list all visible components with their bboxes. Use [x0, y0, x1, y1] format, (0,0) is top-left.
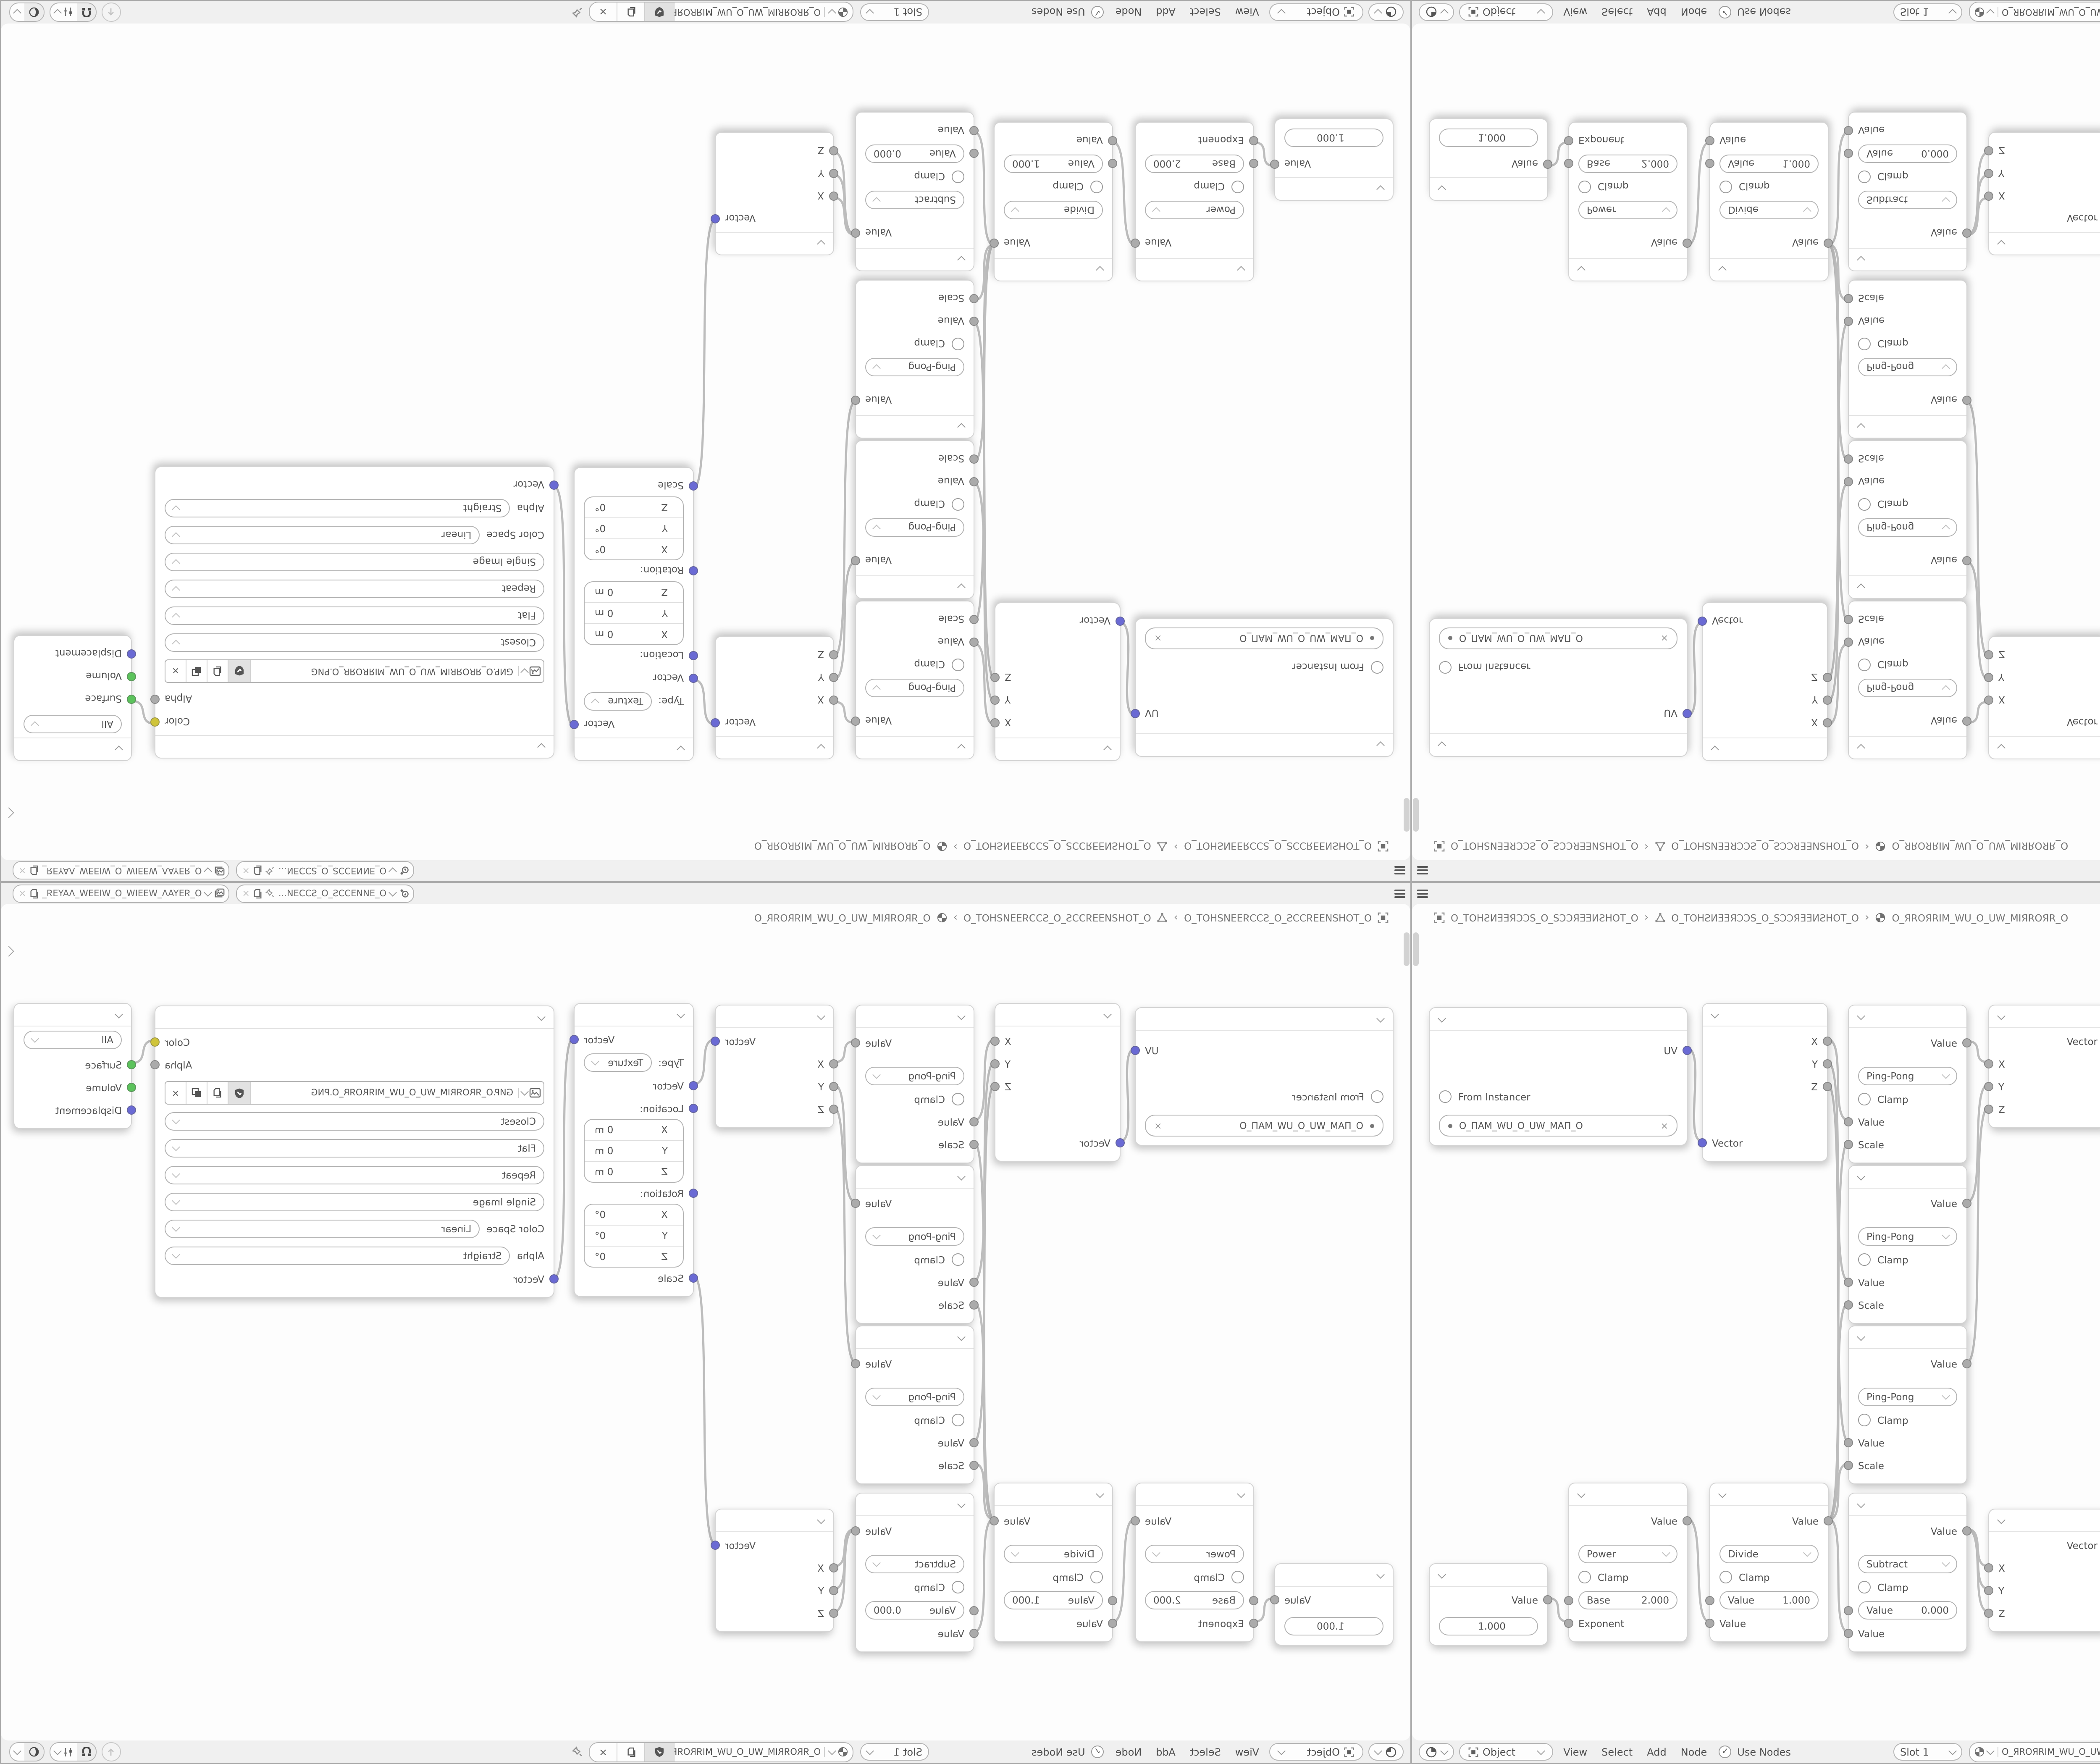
- node-mapping[interactable]: VectorType:TextureVectorLocation:X0 mY0 …: [574, 467, 694, 761]
- socket-value[interactable]: [990, 1037, 1000, 1046]
- socket-value[interactable]: [1705, 159, 1714, 168]
- socket-value[interactable]: [990, 1059, 1000, 1068]
- close-icon[interactable]: ×: [1154, 1120, 1162, 1131]
- checkbox-unchecked-icon[interactable]: [1231, 1571, 1244, 1583]
- node-collapse-header[interactable]: [995, 1483, 1112, 1506]
- socket-vector[interactable]: [689, 651, 698, 660]
- node-canvas[interactable]: O_TOHƧИƎƎЯƆƆS_O_SƆƆЯƎƎИƧHOT_O › O_TOHƧИƎ…: [1, 24, 1410, 860]
- dropdown-ping-pong[interactable]: Ping-Pong: [1858, 518, 1957, 537]
- view-layer-name[interactable]: O_ЯƎYAΛ_WƎƎIW_O_WIƎƎW_ΛAYƎЯ_O: [42, 888, 202, 898]
- overlay-dropdown[interactable]: [10, 1743, 24, 1761]
- checkbox-unchecked-icon[interactable]: [1371, 1090, 1383, 1103]
- dropdown-all[interactable]: All: [24, 715, 122, 733]
- close-icon[interactable]: ×: [1154, 633, 1162, 644]
- material-selector[interactable]: O_ЯROЯRIM_WU_O_UW_MIЯROЯR_O: [1969, 2, 2100, 22]
- node-mapping[interactable]: VectorType:TextureVectorLocation:X0 mY0 …: [574, 1003, 694, 1297]
- value-field[interactable]: 1.000: [1439, 1617, 1538, 1635]
- node-sep_xyz[interactable]: XYZVector: [995, 1003, 1121, 1162]
- socket-value[interactable]: [1844, 1300, 1853, 1310]
- property-dropdown[interactable]: Straight: [165, 499, 510, 517]
- socket-value[interactable]: [969, 317, 979, 326]
- socket-value[interactable]: [1705, 1619, 1714, 1628]
- dropdown-ping-pong[interactable]: Ping-Pong: [1858, 1227, 1957, 1246]
- checkbox-unchecked-icon[interactable]: [952, 1581, 964, 1593]
- checkbox-unchecked-icon[interactable]: [1719, 181, 1732, 193]
- dropdown-ping-pong[interactable]: Ping-Pong: [1858, 1388, 1957, 1406]
- socket-value[interactable]: [1823, 1059, 1832, 1068]
- socket-vector[interactable]: [549, 480, 559, 490]
- checkbox-unchecked-icon[interactable]: [1858, 659, 1871, 671]
- socket-value[interactable]: [1962, 1526, 1971, 1536]
- node-uv_map[interactable]: UVFrom InstancerO_ПAM_WU_O_UW_MAП_O×: [1429, 618, 1688, 757]
- material-browse[interactable]: [825, 3, 853, 21]
- node-collapse-header[interactable]: [1849, 736, 1966, 759]
- node-m1[interactable]: ValuePing-PongClampValueScale: [855, 1005, 974, 1163]
- material-browse[interactable]: [1970, 3, 1998, 21]
- xyz-field[interactable]: Y0°: [585, 518, 683, 539]
- node-divide[interactable]: ValueDivideClampValue1.000Value: [1709, 122, 1829, 281]
- node-collapse-header[interactable]: [716, 232, 833, 255]
- socket-value[interactable]: [829, 146, 838, 155]
- node-divide[interactable]: ValueDivideClampValue1.000Value: [994, 1483, 1113, 1642]
- socket-value[interactable]: [829, 650, 838, 659]
- xyz-field[interactable]: Y0°: [585, 1225, 683, 1246]
- socket-value[interactable]: [1823, 696, 1832, 705]
- node-value[interactable]: Value1.000: [1274, 118, 1394, 201]
- copy-button[interactable]: [207, 1082, 228, 1104]
- socket-value[interactable]: [851, 1526, 860, 1536]
- dropdown-ping-pong[interactable]: Ping-Pong: [865, 679, 964, 697]
- node-collapse-header[interactable]: [856, 736, 974, 759]
- node-collapse-header[interactable]: [1430, 1564, 1547, 1587]
- socket-value[interactable]: [1249, 136, 1258, 145]
- breadcrumb-nodetree[interactable]: O_TOHƧИƎƎЯƆƆS_O_SƆƆЯƎƎИƧHOT_O: [963, 912, 1151, 924]
- node-collapse-header[interactable]: [575, 738, 693, 760]
- breadcrumb-material[interactable]: O_ЯROЯRIM_WU_O_UW_MIЯROЯR_O: [1892, 912, 2068, 924]
- close-icon[interactable]: ×: [242, 865, 249, 876]
- socket-value[interactable]: [851, 228, 860, 238]
- node-collapse-header[interactable]: [1136, 733, 1393, 756]
- view-layer-selector[interactable]: O_ЯƎYAΛ_WƎƎIW_O_WIƎƎW_ΛAYƎЯ_O ×: [13, 861, 229, 880]
- new-material-button[interactable]: [617, 3, 645, 21]
- socket-value[interactable]: [1270, 160, 1279, 169]
- node-collapse-header[interactable]: [1136, 1483, 1253, 1506]
- socket-value[interactable]: [851, 396, 860, 405]
- value-field[interactable]: 1.000: [1284, 1617, 1383, 1635]
- shader-type-dropdown[interactable]: Object: [1459, 3, 1553, 21]
- material-slot-dropdown[interactable]: Slot 1: [1893, 1743, 1962, 1761]
- node-collapse-header[interactable]: [856, 1005, 974, 1028]
- socket-value[interactable]: [1844, 149, 1853, 158]
- socket-vector[interactable]: [127, 1105, 136, 1115]
- socket-value[interactable]: [1984, 169, 1993, 178]
- socket-value[interactable]: [1844, 317, 1853, 326]
- property-dropdown[interactable]: Linear: [165, 526, 480, 544]
- node-sep_xyz[interactable]: XYZVector: [1702, 1003, 1828, 1162]
- checkbox-unchecked-icon[interactable]: [1090, 181, 1103, 193]
- socket-value[interactable]: [969, 1117, 979, 1126]
- socket-vector[interactable]: [1116, 1138, 1125, 1147]
- checkbox-unchecked-icon[interactable]: [952, 1253, 964, 1266]
- fake-user-button[interactable]: [228, 660, 251, 682]
- socket-value[interactable]: [1705, 136, 1714, 145]
- socket-value[interactable]: [1844, 1606, 1853, 1615]
- node-power[interactable]: ValuePowerClampBase2.000Exponent: [1568, 1483, 1688, 1642]
- unlink-material-button[interactable]: ×: [590, 3, 617, 21]
- node-m1[interactable]: ValuePing-PongClampValueScale: [1848, 601, 1967, 759]
- node-subtract[interactable]: ValueSubtractClampValue0.000Value: [1848, 112, 1967, 271]
- new-material-button[interactable]: [617, 1743, 645, 1761]
- socket-value[interactable]: [829, 1609, 838, 1618]
- checkbox-checked-icon[interactable]: ✓: [1091, 6, 1104, 18]
- parent-up-button[interactable]: [102, 3, 121, 22]
- node-collapse-header[interactable]: [1569, 1483, 1687, 1506]
- socket-value[interactable]: [1824, 1516, 1833, 1525]
- dropdown-power[interactable]: Power: [1578, 201, 1677, 219]
- dropdown-ping-pong[interactable]: Ping-Pong: [865, 1067, 964, 1085]
- socket-value[interactable]: [829, 673, 838, 682]
- socket-value[interactable]: [150, 695, 160, 704]
- menu-select[interactable]: Select: [1190, 1746, 1221, 1758]
- socket-vector[interactable]: [1131, 709, 1140, 718]
- socket-value[interactable]: [1844, 294, 1853, 303]
- node-m2[interactable]: ValuePing-PongClampValueScale: [1848, 440, 1967, 599]
- uv-map-dropdown[interactable]: O_ПAM_WU_O_UW_MAП_O×: [1439, 627, 1677, 649]
- dropdown-repeat[interactable]: Repeat: [165, 580, 544, 598]
- checkbox-unchecked-icon[interactable]: [1371, 661, 1383, 674]
- checkbox-unchecked-icon[interactable]: [952, 498, 964, 511]
- checkbox-unchecked-icon[interactable]: [1858, 1253, 1871, 1266]
- socket-value[interactable]: [1131, 239, 1140, 248]
- menu-view[interactable]: View: [1235, 6, 1259, 18]
- node-m2[interactable]: ValuePing-PongClampValueScale: [1848, 1165, 1967, 1324]
- socket-value[interactable]: [1844, 477, 1853, 486]
- xyz-field[interactable]: Z0°: [585, 497, 683, 518]
- node-collapse-header[interactable]: [856, 575, 974, 598]
- node-collapse-header[interactable]: [1849, 248, 1966, 270]
- dropdown-power[interactable]: Power: [1145, 1545, 1244, 1563]
- checkbox-checked-icon[interactable]: ✓: [1091, 1746, 1104, 1758]
- value-field[interactable]: Base2.000: [1145, 155, 1244, 173]
- socket-value[interactable]: [1962, 396, 1971, 405]
- node-subtract[interactable]: ValueSubtractClampValue0.000Value: [1848, 1493, 1967, 1652]
- socket-value[interactable]: [1108, 136, 1117, 145]
- xyz-field[interactable]: Z0 m: [585, 1161, 683, 1182]
- node-m3[interactable]: ValuePing-PongClampValueScale: [855, 280, 974, 438]
- unlink-button[interactable]: ×: [165, 660, 186, 682]
- scrollbar-thumb[interactable]: [1413, 932, 1419, 966]
- breadcrumb-object[interactable]: O_TOHƧИƎƎЯƆƆS_O_SƆƆЯƎƎИƧHOT_O: [1184, 840, 1372, 852]
- value-field[interactable]: Base2.000: [1145, 1591, 1244, 1609]
- socket-vector[interactable]: [1683, 1046, 1692, 1055]
- uv-map-dropdown[interactable]: O_ПAM_WU_O_UW_MAП_O×: [1439, 1115, 1677, 1137]
- checkbox-unchecked-icon[interactable]: [1858, 1093, 1871, 1105]
- material-slot-dropdown[interactable]: Slot 1: [1893, 3, 1962, 21]
- socket-value[interactable]: [1962, 228, 1971, 238]
- socket-vector[interactable]: [689, 674, 698, 683]
- dropdown-ping-pong[interactable]: Ping-Pong: [865, 1388, 964, 1406]
- socket-value[interactable]: [1249, 1596, 1258, 1605]
- socket-value[interactable]: [1131, 1516, 1140, 1525]
- dropdown-divide[interactable]: Divide: [1004, 201, 1103, 219]
- pack-button[interactable]: [186, 1082, 207, 1104]
- close-icon[interactable]: ×: [18, 888, 26, 899]
- node-collapse-header[interactable]: [575, 1004, 693, 1026]
- dropdown-closest[interactable]: Closest: [165, 1112, 544, 1131]
- node-collapse-header[interactable]: [995, 1004, 1120, 1026]
- socket-vector[interactable]: [570, 1035, 579, 1044]
- dropdown-subtract[interactable]: Subtract: [865, 191, 964, 209]
- value-field[interactable]: 1.000: [1439, 129, 1538, 147]
- breadcrumb-object[interactable]: O_TOHƧИƎƎЯƆƆS_O_SƆƆЯƎƎИƧHOT_O: [1451, 912, 1638, 924]
- unlink-button[interactable]: ×: [165, 1082, 186, 1104]
- dropdown-subtract[interactable]: Subtract: [865, 1555, 964, 1573]
- socket-value[interactable]: [1564, 159, 1573, 168]
- checkbox-checked-icon[interactable]: ✓: [1719, 1746, 1731, 1758]
- checkbox-unchecked-icon[interactable]: [952, 1093, 964, 1105]
- node-collapse-header[interactable]: [1989, 232, 2100, 255]
- image-browse[interactable]: [519, 1082, 543, 1104]
- node-collapse-header[interactable]: [1430, 1008, 1687, 1031]
- socket-value[interactable]: [1984, 1082, 1993, 1091]
- node-collapse-header[interactable]: [1849, 1494, 1966, 1516]
- socket-value[interactable]: [1844, 615, 1853, 624]
- image-filename[interactable]: GИP.O_ЯROЯRIM_WU_O_UW_MIЯROЯR_O.PNG: [251, 666, 519, 676]
- xyz-field[interactable]: Z0 m: [585, 582, 683, 603]
- node-collapse-header[interactable]: [856, 1326, 974, 1349]
- dropdown-single-image[interactable]: Single Image: [165, 1193, 544, 1211]
- checkbox-unchecked-icon[interactable]: [1858, 1581, 1871, 1593]
- pin-icon[interactable]: [266, 889, 275, 898]
- socket-value[interactable]: [990, 1082, 1000, 1091]
- socket-value[interactable]: [1984, 1609, 1993, 1618]
- dropdown-ping-pong[interactable]: Ping-Pong: [1858, 358, 1957, 376]
- breadcrumb-nodetree[interactable]: O_TOHƧИƎƎЯƆƆS_O_SƆƆЯƎƎИƧHOT_O: [1671, 912, 1859, 924]
- menu-add[interactable]: Add: [1156, 6, 1175, 18]
- hamburger-menu-icon[interactable]: [1394, 866, 1405, 875]
- socket-vector[interactable]: [711, 214, 720, 223]
- checkbox-checked-icon[interactable]: ✓: [1719, 6, 1731, 18]
- close-icon[interactable]: ×: [1661, 1120, 1668, 1131]
- node-collapse-header[interactable]: [1710, 258, 1828, 281]
- node-m1[interactable]: ValuePing-PongClampValueScale: [855, 601, 974, 759]
- dropdown-flat[interactable]: Flat: [165, 606, 544, 625]
- socket-value[interactable]: [829, 1082, 838, 1091]
- socket-vector[interactable]: [689, 1189, 698, 1198]
- breadcrumb-object[interactable]: O_TOHƧИƎƎЯƆƆS_O_SƆƆЯƎƎИƧHOT_O: [1184, 912, 1372, 924]
- overlay-toggle[interactable]: [24, 1743, 44, 1761]
- dropdown-ping-pong[interactable]: Ping-Pong: [1858, 1067, 1957, 1085]
- dropdown-ping-pong[interactable]: Ping-Pong: [865, 518, 964, 537]
- checkbox-unchecked-icon[interactable]: [1090, 1571, 1103, 1583]
- socket-vector[interactable]: [711, 1541, 720, 1550]
- menu-node[interactable]: Node: [1116, 6, 1142, 18]
- node-collapse-header[interactable]: [1989, 1509, 2100, 1532]
- socket-shader[interactable]: [127, 672, 136, 681]
- checkbox-unchecked-icon[interactable]: [1578, 181, 1591, 193]
- property-dropdown[interactable]: Linear: [165, 1220, 480, 1238]
- uv-map-dropdown[interactable]: O_ПAM_WU_O_UW_MAП_O×: [1145, 627, 1383, 649]
- menu-node[interactable]: Node: [1116, 1746, 1142, 1758]
- node-value[interactable]: Value1.000: [1429, 118, 1548, 201]
- node-collapse-header[interactable]: [995, 258, 1112, 281]
- socket-value[interactable]: [1543, 160, 1552, 169]
- socket-value[interactable]: [1108, 1619, 1117, 1628]
- snap-toggle[interactable]: [77, 3, 96, 21]
- snap-settings-dropdown[interactable]: [50, 1743, 77, 1761]
- xyz-field[interactable]: X0°: [585, 539, 683, 559]
- socket-value[interactable]: [1683, 239, 1692, 248]
- view-layer-name[interactable]: O_ЯƎYAΛ_WƎƎIW_O_WIƎƎW_ΛAYƎЯ_O: [42, 866, 202, 876]
- menu-select[interactable]: Select: [1190, 6, 1221, 18]
- socket-value[interactable]: [990, 673, 1000, 682]
- dropdown-divide[interactable]: Divide: [1004, 1545, 1103, 1563]
- dropdown-ping-pong[interactable]: Ping-Pong: [865, 358, 964, 376]
- node-collapse-header[interactable]: [1136, 258, 1253, 281]
- node-collapse-header[interactable]: [155, 1006, 554, 1029]
- socket-value[interactable]: [1543, 1595, 1552, 1604]
- property-dropdown[interactable]: Texture: [584, 692, 651, 711]
- socket-vector[interactable]: [689, 1273, 698, 1283]
- node-divide[interactable]: ValueDivideClampValue1.000Value: [1709, 1483, 1829, 1642]
- socket-value[interactable]: [1984, 650, 1993, 659]
- close-icon[interactable]: ×: [1661, 633, 1668, 644]
- socket-value[interactable]: [969, 1140, 979, 1149]
- node-uv_map[interactable]: UVFrom InstancerO_ПAM_WU_O_UW_MAП_O×: [1135, 618, 1394, 757]
- menu-node[interactable]: Node: [1681, 1746, 1707, 1758]
- checkbox-unchecked-icon[interactable]: [1719, 1571, 1732, 1583]
- shader-type-dropdown[interactable]: Object: [1459, 1743, 1553, 1761]
- socket-color[interactable]: [150, 1037, 160, 1047]
- copy-button[interactable]: [207, 660, 228, 682]
- material-name[interactable]: O_ЯROЯRIM_WU_O_UW_MIЯROЯR_O: [1998, 7, 2100, 17]
- value-field[interactable]: Value0.000: [865, 144, 964, 163]
- menu-node[interactable]: Node: [1681, 6, 1707, 18]
- checkbox-unchecked-icon[interactable]: [1231, 181, 1244, 193]
- node-m1[interactable]: ValuePing-PongClampValueScale: [1848, 1005, 1967, 1163]
- dropdown-power[interactable]: Power: [1578, 1545, 1677, 1563]
- socket-value[interactable]: [1984, 696, 1993, 705]
- xyz-field[interactable]: Y0 m: [585, 1140, 683, 1161]
- socket-value[interactable]: [990, 239, 999, 248]
- node-comb1[interactable]: VectorXYZ: [715, 636, 834, 759]
- dropdown-power[interactable]: Power: [1145, 201, 1244, 219]
- node-mat_out[interactable]: AllSurfaceVolumeDisplacement: [13, 635, 132, 761]
- socket-value[interactable]: [1108, 1596, 1117, 1605]
- socket-value[interactable]: [1962, 1199, 1971, 1208]
- scene-selector[interactable]: O_ƎИИƎƆƆS_O_SƆƆƎИ... ×: [236, 884, 414, 903]
- socket-value[interactable]: [1844, 1461, 1853, 1470]
- node-collapse-header[interactable]: [1989, 736, 2100, 759]
- checkbox-unchecked-icon[interactable]: [1439, 1090, 1452, 1103]
- socket-value[interactable]: [1823, 1082, 1832, 1091]
- socket-value[interactable]: [1564, 1596, 1573, 1605]
- unlink-material-button[interactable]: ×: [590, 1743, 617, 1761]
- use-nodes-toggle[interactable]: ✓ Use Nodes: [1032, 6, 1104, 18]
- socket-vector[interactable]: [689, 566, 698, 575]
- socket-vector[interactable]: [1116, 617, 1125, 626]
- breadcrumb-nodetree[interactable]: O_TOHƧИƎƎЯƆƆS_O_SƆƆЯƎƎИƧHOT_O: [1671, 840, 1859, 852]
- socket-value[interactable]: [829, 1586, 838, 1595]
- socket-vector[interactable]: [711, 1037, 720, 1046]
- node-collapse-header[interactable]: [1703, 738, 1827, 760]
- socket-vector[interactable]: [711, 718, 720, 727]
- socket-value[interactable]: [829, 1105, 838, 1114]
- fake-user-button[interactable]: [645, 3, 675, 21]
- use-nodes-toggle[interactable]: ✓ Use Nodes: [1719, 1746, 1791, 1758]
- socket-value[interactable]: [969, 1606, 979, 1615]
- node-collapse-header[interactable]: [716, 1509, 833, 1532]
- value-field[interactable]: 1.000: [1284, 129, 1383, 147]
- dropdown-divide[interactable]: Divide: [1719, 201, 1819, 219]
- scene-name[interactable]: O_ƎИИƎƆƆS_O_SƆƆƎИ...: [278, 888, 386, 898]
- socket-value[interactable]: [829, 169, 838, 178]
- node-collapse-header[interactable]: [856, 415, 974, 438]
- socket-value[interactable]: [1984, 1059, 1993, 1068]
- socket-value[interactable]: [150, 1060, 160, 1069]
- pin-icon[interactable]: [572, 1746, 583, 1757]
- socket-value[interactable]: [969, 615, 979, 624]
- dropdown-subtract[interactable]: Subtract: [1858, 191, 1957, 209]
- uv-map-dropdown[interactable]: O_ПAM_WU_O_UW_MAП_O×: [1145, 1115, 1383, 1137]
- editor-type-button[interactable]: [1419, 3, 1454, 21]
- material-slot-dropdown[interactable]: Slot 1: [860, 3, 929, 21]
- node-collapse-header[interactable]: [1849, 1326, 1966, 1349]
- fake-user-button[interactable]: [228, 1082, 251, 1104]
- socket-vector[interactable]: [570, 720, 579, 729]
- socket-value[interactable]: [1844, 638, 1853, 647]
- parent-up-button[interactable]: [102, 1742, 121, 1761]
- editor-type-button[interactable]: [1419, 1743, 1454, 1761]
- node-collapse-header[interactable]: [856, 1166, 974, 1189]
- image-browse[interactable]: [519, 660, 543, 682]
- socket-value[interactable]: [969, 1300, 979, 1310]
- shader-type-dropdown[interactable]: Object: [1269, 3, 1363, 21]
- menu-add[interactable]: Add: [1156, 1746, 1175, 1758]
- value-field[interactable]: Value1.000: [1004, 1591, 1103, 1609]
- socket-value[interactable]: [1962, 717, 1971, 726]
- node-divide[interactable]: ValueDivideClampValue1.000Value: [994, 122, 1113, 281]
- dropdown-flat[interactable]: Flat: [165, 1139, 544, 1158]
- breadcrumb-material[interactable]: O_ЯROЯRIM_WU_O_UW_MIЯROЯR_O: [1892, 840, 2068, 852]
- socket-value[interactable]: [969, 638, 979, 647]
- socket-value[interactable]: [1984, 1563, 1993, 1572]
- socket-value[interactable]: [829, 1563, 838, 1572]
- node-m3[interactable]: ValuePing-PongClampValueScale: [855, 1326, 974, 1484]
- value-field[interactable]: Value1.000: [1719, 1591, 1819, 1609]
- node-collapse-header[interactable]: [1430, 733, 1687, 756]
- socket-value[interactable]: [1564, 136, 1573, 145]
- socket-color[interactable]: [150, 717, 160, 727]
- node-collapse-header[interactable]: [716, 1005, 833, 1028]
- material-selector[interactable]: O_ЯROЯRIM_WU_O_UW_MIЯROЯR_O: [589, 1742, 853, 1762]
- socket-value[interactable]: [969, 454, 979, 464]
- socket-vector[interactable]: [127, 649, 136, 659]
- socket-value[interactable]: [1705, 1596, 1714, 1605]
- view-layer-selector[interactable]: O_ЯƎYAΛ_WƎƎIW_O_WIƎƎW_ΛAYƎЯ_O ×: [13, 884, 229, 903]
- socket-value[interactable]: [1823, 673, 1832, 682]
- socket-value[interactable]: [1984, 146, 1993, 155]
- value-field[interactable]: Value0.000: [865, 1601, 964, 1620]
- hamburger-menu-icon[interactable]: [1417, 889, 1428, 898]
- node-value[interactable]: Value1.000: [1429, 1563, 1548, 1646]
- xyz-field[interactable]: X0 m: [585, 624, 683, 644]
- node-collapse-header[interactable]: [856, 1494, 974, 1516]
- xyz-field[interactable]: Z0°: [585, 1246, 683, 1267]
- socket-value[interactable]: [1984, 1586, 1993, 1595]
- value-field[interactable]: Value0.000: [1858, 144, 1957, 163]
- socket-value[interactable]: [969, 477, 979, 486]
